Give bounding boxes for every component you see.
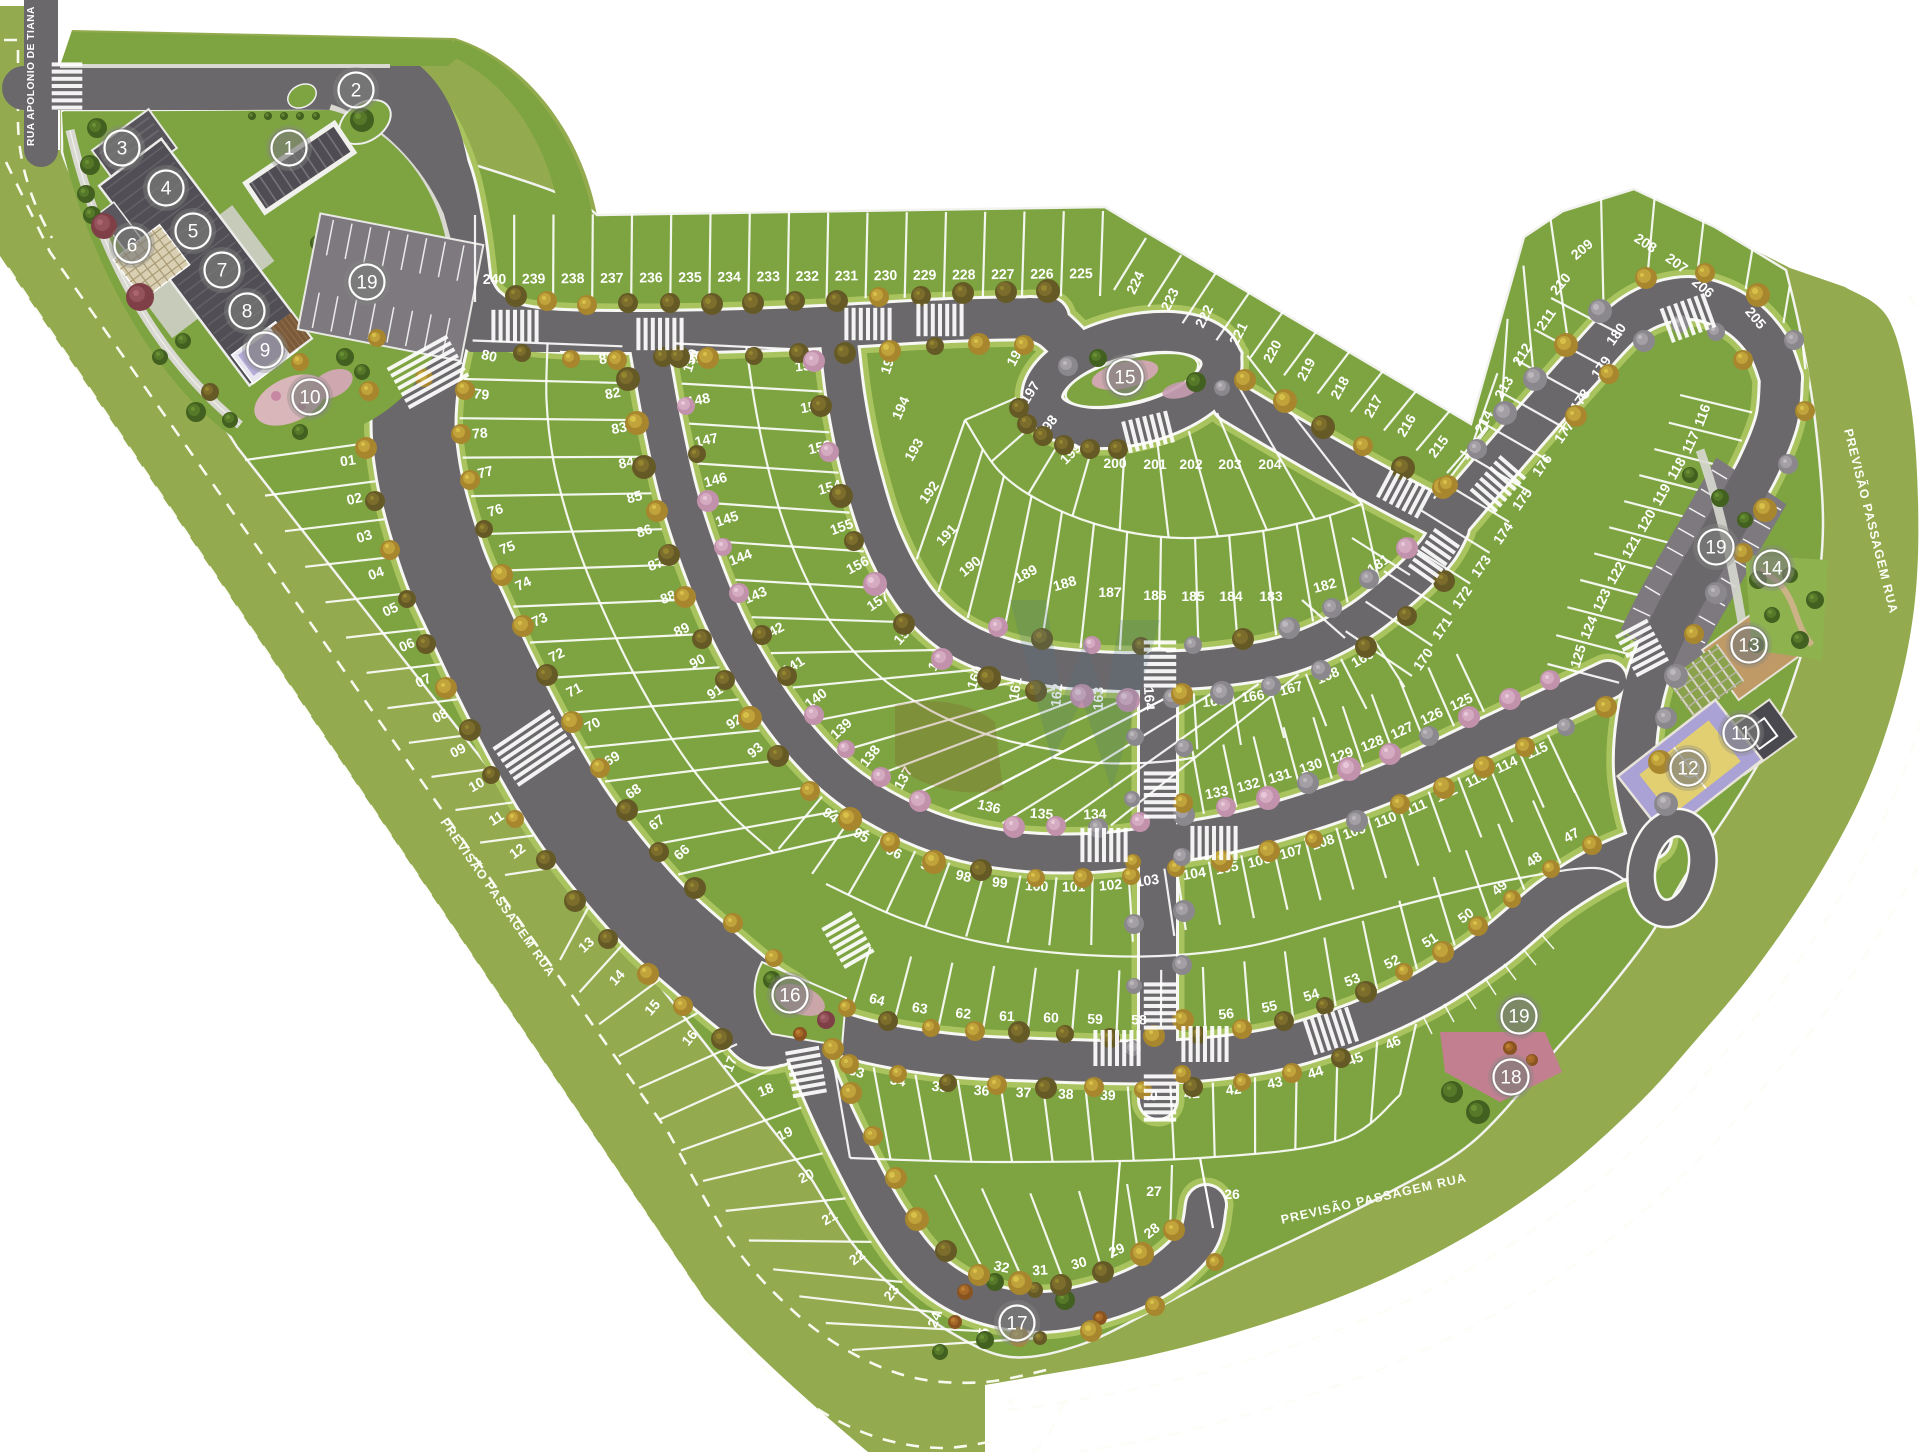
svg-text:18: 18 xyxy=(1500,1068,1521,1089)
svg-text:8: 8 xyxy=(242,302,253,323)
svg-text:63: 63 xyxy=(911,999,929,1017)
svg-text:237: 237 xyxy=(600,269,624,285)
svg-text:62: 62 xyxy=(955,1004,972,1021)
svg-text:6: 6 xyxy=(127,236,138,257)
svg-text:240: 240 xyxy=(483,271,507,287)
svg-text:60: 60 xyxy=(1043,1009,1059,1026)
svg-text:19: 19 xyxy=(356,273,377,294)
svg-text:12: 12 xyxy=(1677,759,1698,780)
svg-text:233: 233 xyxy=(756,268,780,284)
svg-text:11: 11 xyxy=(1731,724,1751,745)
svg-text:19: 19 xyxy=(1508,1007,1529,1028)
svg-text:185: 185 xyxy=(1181,588,1205,604)
svg-text:202: 202 xyxy=(1179,456,1203,472)
svg-text:231: 231 xyxy=(835,267,859,283)
svg-text:235: 235 xyxy=(678,269,702,285)
svg-text:236: 236 xyxy=(639,269,663,285)
svg-text:26: 26 xyxy=(1224,1186,1240,1202)
svg-text:5: 5 xyxy=(188,222,199,243)
svg-text:184: 184 xyxy=(1219,588,1243,604)
svg-text:7: 7 xyxy=(217,261,228,282)
svg-text:RUA APOLONIO DE TIANA: RUA APOLONIO DE TIANA xyxy=(26,6,37,146)
svg-text:234: 234 xyxy=(717,268,741,284)
svg-text:01: 01 xyxy=(339,451,357,469)
svg-text:102: 102 xyxy=(1098,876,1123,894)
svg-text:27: 27 xyxy=(1146,1183,1162,1199)
svg-text:3: 3 xyxy=(117,139,128,160)
svg-text:203: 203 xyxy=(1218,456,1242,472)
svg-text:59: 59 xyxy=(1087,1011,1103,1028)
svg-text:79: 79 xyxy=(473,385,491,403)
svg-text:187: 187 xyxy=(1098,584,1122,600)
svg-text:19: 19 xyxy=(1705,538,1726,559)
svg-text:229: 229 xyxy=(913,266,937,282)
svg-text:10: 10 xyxy=(299,388,320,409)
svg-text:186: 186 xyxy=(1143,587,1167,603)
svg-text:183: 183 xyxy=(1259,588,1283,604)
svg-text:14: 14 xyxy=(1761,559,1783,580)
svg-text:56: 56 xyxy=(1217,1005,1235,1023)
svg-text:239: 239 xyxy=(522,270,546,286)
svg-text:232: 232 xyxy=(795,268,819,284)
svg-text:227: 227 xyxy=(991,266,1015,282)
svg-text:1: 1 xyxy=(284,139,295,160)
svg-text:16: 16 xyxy=(779,986,800,1007)
svg-text:31: 31 xyxy=(1032,1261,1049,1278)
svg-text:78: 78 xyxy=(471,424,488,441)
svg-text:99: 99 xyxy=(991,873,1009,891)
svg-text:9: 9 xyxy=(260,341,271,362)
svg-text:201: 201 xyxy=(1143,456,1167,472)
svg-text:15: 15 xyxy=(1114,368,1135,389)
svg-text:61: 61 xyxy=(999,1008,1015,1025)
svg-text:2: 2 xyxy=(351,81,362,102)
svg-text:13: 13 xyxy=(1738,636,1759,657)
svg-text:4: 4 xyxy=(161,179,172,200)
svg-text:230: 230 xyxy=(874,267,898,283)
svg-text:37: 37 xyxy=(1016,1084,1032,1101)
svg-text:204: 204 xyxy=(1258,456,1282,472)
svg-text:238: 238 xyxy=(561,270,585,286)
svg-text:228: 228 xyxy=(952,266,976,282)
svg-text:225: 225 xyxy=(1069,265,1093,281)
svg-text:38: 38 xyxy=(1058,1086,1074,1103)
svg-text:17: 17 xyxy=(1006,1314,1027,1335)
